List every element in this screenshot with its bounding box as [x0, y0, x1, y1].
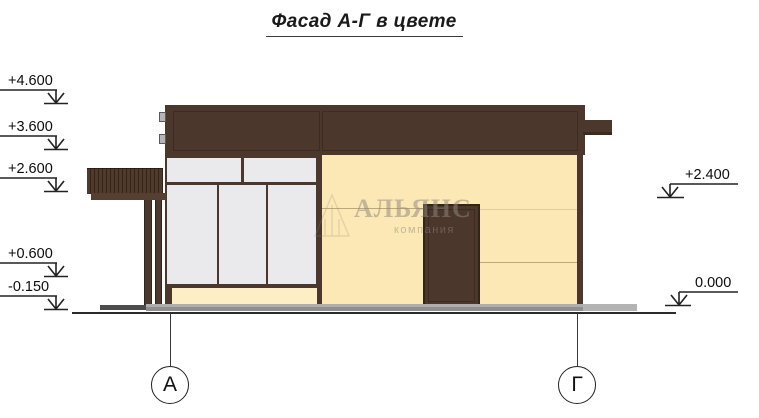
canopy-post: [155, 200, 162, 306]
axis-label: А: [163, 373, 177, 397]
elevation-arrow-icon: [0, 177, 70, 195]
facade-elevation-drawing: Фасад А-Г в цвете +4.600 +3.600 +2.600 +…: [0, 0, 759, 418]
watermark-tagline: компания: [394, 224, 455, 236]
elevation-value: 0.000: [695, 275, 731, 291]
elevation-mark-left-2600: +2.600: [0, 161, 70, 195]
elevation-arrow-icon: [0, 295, 70, 313]
roof-drain-pipe: [583, 120, 612, 135]
axis-label: Г: [571, 373, 582, 397]
elevation-mark-left-0600: +0.600: [0, 246, 70, 280]
window-pane: [219, 185, 266, 284]
window-pane: [167, 185, 217, 284]
transom-window: [167, 158, 241, 182]
axis-line-g: [577, 314, 578, 366]
elevation-value: +4.600: [0, 73, 70, 89]
elevation-mark-left-3600: +3.600: [0, 119, 70, 153]
axis-bubble-g: Г: [558, 366, 596, 404]
spandrel-panel: [172, 288, 317, 305]
elevation-mark-left-4600: +4.600: [0, 73, 70, 107]
elevation-value: +2.600: [0, 161, 70, 177]
wall-joint-line: [480, 262, 577, 263]
window-pane: [268, 185, 316, 284]
elevation-arrow-icon: [664, 291, 759, 309]
elevation-arrow-icon: [655, 183, 759, 201]
elevation-value: +3.600: [0, 119, 70, 135]
elevation-arrow-icon: [0, 135, 70, 153]
elevation-arrow-icon: [0, 262, 70, 280]
porch-slab: [100, 305, 146, 310]
corner-trim: [577, 155, 583, 305]
canopy-fascia: [91, 193, 166, 200]
ground-line: [72, 312, 676, 314]
elevation-mark-right-2400: +2.400: [655, 167, 759, 201]
wall-joint-line: [480, 209, 577, 210]
elevation-value: -0.150: [0, 279, 70, 295]
plinth: [146, 304, 583, 311]
roof-bracket: [159, 134, 166, 144]
roof-band: [165, 105, 585, 155]
elevation-arrow-icon: [0, 89, 70, 107]
axis-bubble-a: А: [151, 366, 189, 404]
roof-panel-seam: [173, 111, 320, 151]
elevation-value: +2.400: [685, 167, 730, 183]
roof-panel-seam: [322, 111, 578, 151]
glazed-facade-section: [165, 155, 322, 305]
elevation-value: +0.600: [0, 246, 70, 262]
axis-line-a: [170, 314, 171, 366]
plinth-extension: [583, 304, 637, 311]
elevation-mark-left-minus0150: -0.150: [0, 279, 70, 313]
canopy-post: [144, 200, 152, 306]
elevation-mark-right-0000: 0.000: [664, 275, 759, 309]
drawing-title: Фасад А-Г в цвете: [266, 11, 463, 37]
watermark-logo-icon: [314, 193, 350, 238]
canopy: [87, 168, 163, 194]
transom-window: [244, 158, 316, 182]
watermark-brand: АЛЬЯНС: [354, 194, 472, 224]
roof-bracket: [159, 112, 166, 122]
